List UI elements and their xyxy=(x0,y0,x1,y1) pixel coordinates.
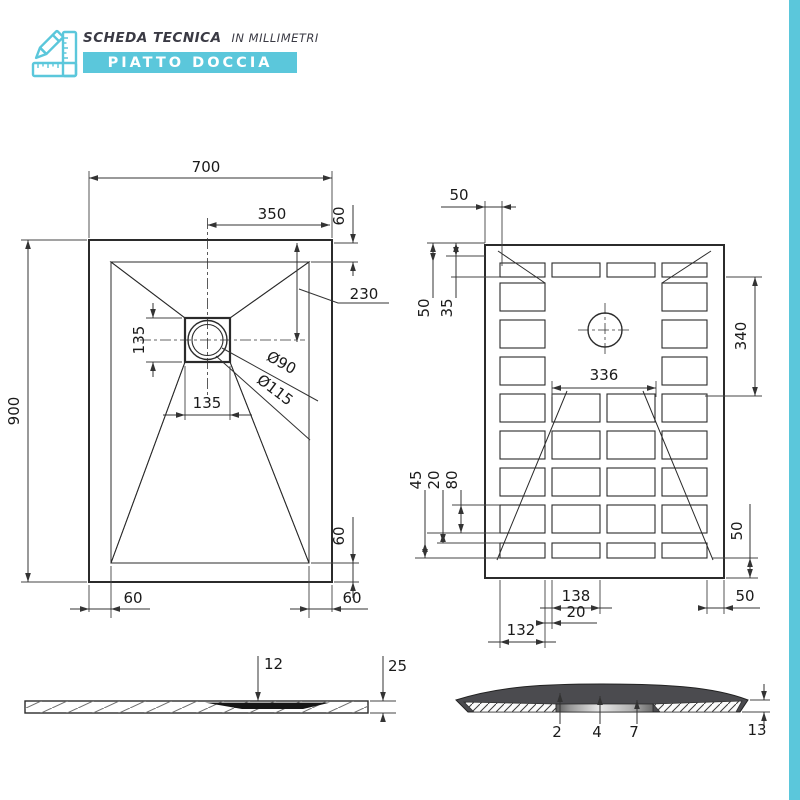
dim-plug: 7 xyxy=(629,723,639,741)
dim-side-span: 340 xyxy=(732,322,750,351)
dim-thickness: 25 xyxy=(388,657,407,675)
dim-center-span: 336 xyxy=(590,366,619,384)
dim-drain-box-h: 135 xyxy=(130,326,148,355)
dim-slot-a: 45 xyxy=(407,470,425,489)
dim-side-margin: 50 xyxy=(728,521,746,540)
dim-offset-a: 50 xyxy=(415,298,433,317)
top-view: 700 350 60 230 135 135 xyxy=(5,158,389,618)
dim-recess-depth: 12 xyxy=(264,655,283,673)
dim-pitch: 80 xyxy=(443,470,461,489)
dim-base: 4 xyxy=(592,723,602,741)
dim-gap: 20 xyxy=(425,470,443,489)
bottom-view: 50 50 35 340 336 45 20 xyxy=(407,186,762,648)
drain-plug xyxy=(556,704,653,712)
dim-drain-box-w: 135 xyxy=(193,394,222,412)
dim-corner-margin: 50 xyxy=(735,587,754,605)
dim-edge-thickness: 13 xyxy=(747,721,766,739)
dim-rim-bottom-left: 60 xyxy=(123,589,142,607)
dim-rim-top: 60 xyxy=(330,206,348,225)
cross-section: 2 4 7 13 xyxy=(456,684,770,741)
dim-tray-width: 700 xyxy=(192,158,221,176)
technical-drawing: 700 350 60 230 135 135 xyxy=(0,0,800,800)
dim-rim-side: 60 xyxy=(330,526,348,545)
datasheet-page: SCHEDA TECNICAIN MILLIMETRI PIATTO DOCCI… xyxy=(0,0,800,800)
dim-rim-bottom-right: 60 xyxy=(342,589,361,607)
side-profile: 12 25 xyxy=(25,655,407,722)
dim-edge-margin-top: 50 xyxy=(449,186,468,204)
dim-offset-b: 35 xyxy=(438,298,456,317)
dim-rib: 20 xyxy=(566,603,585,621)
dim-drain-offset-x: 350 xyxy=(258,205,287,223)
dim-lip: 2 xyxy=(552,723,562,741)
dim-drain-offset-y: 230 xyxy=(350,285,379,303)
dim-tray-height: 900 xyxy=(5,397,23,426)
dim-first-slot: 132 xyxy=(507,621,536,639)
rib-slots xyxy=(500,263,707,558)
